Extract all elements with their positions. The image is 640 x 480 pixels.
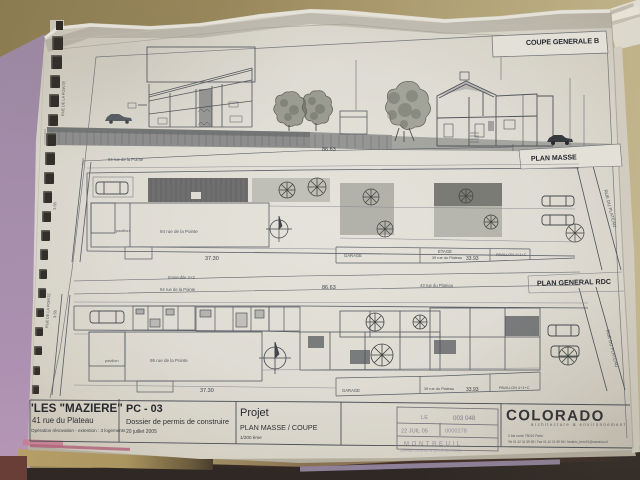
svg-text:3.56: 3.56 xyxy=(52,201,57,210)
svg-text:ETAGE: ETAGE xyxy=(438,249,452,254)
svg-text:0000178: 0000178 xyxy=(445,429,467,435)
svg-text:RUE DE LA POINTE: RUE DE LA POINTE xyxy=(61,80,66,116)
svg-text:37.30: 37.30 xyxy=(200,388,214,394)
svg-text:2 bis route 75019 Paris: 2 bis route 75019 Paris xyxy=(508,434,543,438)
svg-text:22 JUIL 05: 22 JUIL 05 xyxy=(401,429,428,435)
svg-text:86.63: 86.63 xyxy=(322,285,336,291)
svg-text:33.93: 33.93 xyxy=(466,256,479,262)
svg-text:pavillon: pavillon xyxy=(105,358,119,363)
svg-text:RUE DU PLATEAU: RUE DU PLATEAU xyxy=(603,189,617,228)
svg-text:PAVILLON 4+1+C: PAVILLON 4+1+C xyxy=(496,253,527,257)
svg-text:94 rue de la Pointe: 94 rue de la Pointe xyxy=(108,157,144,162)
svg-text:pavillon: pavillon xyxy=(116,228,130,233)
svg-text:41 rue du Plateau: 41 rue du Plateau xyxy=(32,416,94,425)
svg-text:003 048: 003 048 xyxy=(453,415,476,422)
svg-text:'LES "MAZIERE": 'LES "MAZIERE" xyxy=(31,402,123,415)
svg-text:Opération rénovation - extenti: Opération rénovation - extention : 3 log… xyxy=(31,428,126,433)
svg-text:3.56: 3.56 xyxy=(52,309,58,318)
svg-text:Dossier de permis de construir: Dossier de permis de construire xyxy=(126,417,229,426)
svg-text:RUE DU PLATEAU: RUE DU PLATEAU xyxy=(605,329,619,368)
svg-text:PLAN GENERAL RDC: PLAN GENERAL RDC xyxy=(537,277,611,288)
svg-text:Projet: Projet xyxy=(240,407,269,419)
svg-text:20 juillet 2005: 20 juillet 2005 xyxy=(126,429,157,435)
svg-text:43 rue du Plateau: 43 rue du Plateau xyxy=(420,283,454,288)
svg-text:94 rue de la Pointe: 94 rue de la Pointe xyxy=(160,229,198,234)
svg-text:39 rue du Plateau: 39 rue du Plateau xyxy=(424,387,454,391)
svg-text:GARAGE: GARAGE xyxy=(344,253,362,258)
svg-text:95 rue de la Pointe: 95 rue de la Pointe xyxy=(150,358,188,363)
svg-text:39 rue du Plateau: 39 rue du Plateau xyxy=(432,256,462,260)
svg-text:RUE DE LA POINTE: RUE DE LA POINTE xyxy=(45,292,51,328)
svg-text:1/200 ème: 1/200 ème xyxy=(240,435,262,440)
svg-text:LE: LE xyxy=(421,415,428,421)
svg-text:Service Urbanisme (Droit des S: Service Urbanisme (Droit des Sols) xyxy=(400,448,461,453)
svg-text:37.30: 37.30 xyxy=(205,256,219,262)
svg-text:94 rue de la Pointe: 94 rue de la Pointe xyxy=(160,287,196,292)
svg-text:PC - 03: PC - 03 xyxy=(126,403,163,415)
svg-text:86.63: 86.63 xyxy=(322,147,336,153)
svg-text:PAVILLON 4+1+C: PAVILLON 4+1+C xyxy=(499,386,530,390)
svg-text:Tel 01 42 01 59 98 / Fax 01: Tel 01 42 01 59 98 / Fax 01 42 01 59 96 … xyxy=(508,440,609,444)
svg-text:GARAGE: GARAGE xyxy=(342,388,360,393)
svg-text:COUPE GENERALE B: COUPE GENERALE B xyxy=(526,36,599,47)
svg-text:33.93: 33.93 xyxy=(466,387,479,393)
svg-text:PLAN MASSE / COUPE: PLAN MASSE / COUPE xyxy=(240,423,318,432)
svg-text:architecture & environnement: architecture & environnement xyxy=(531,422,626,427)
svg-text:Immeuble 4+3: Immeuble 4+3 xyxy=(168,275,195,280)
